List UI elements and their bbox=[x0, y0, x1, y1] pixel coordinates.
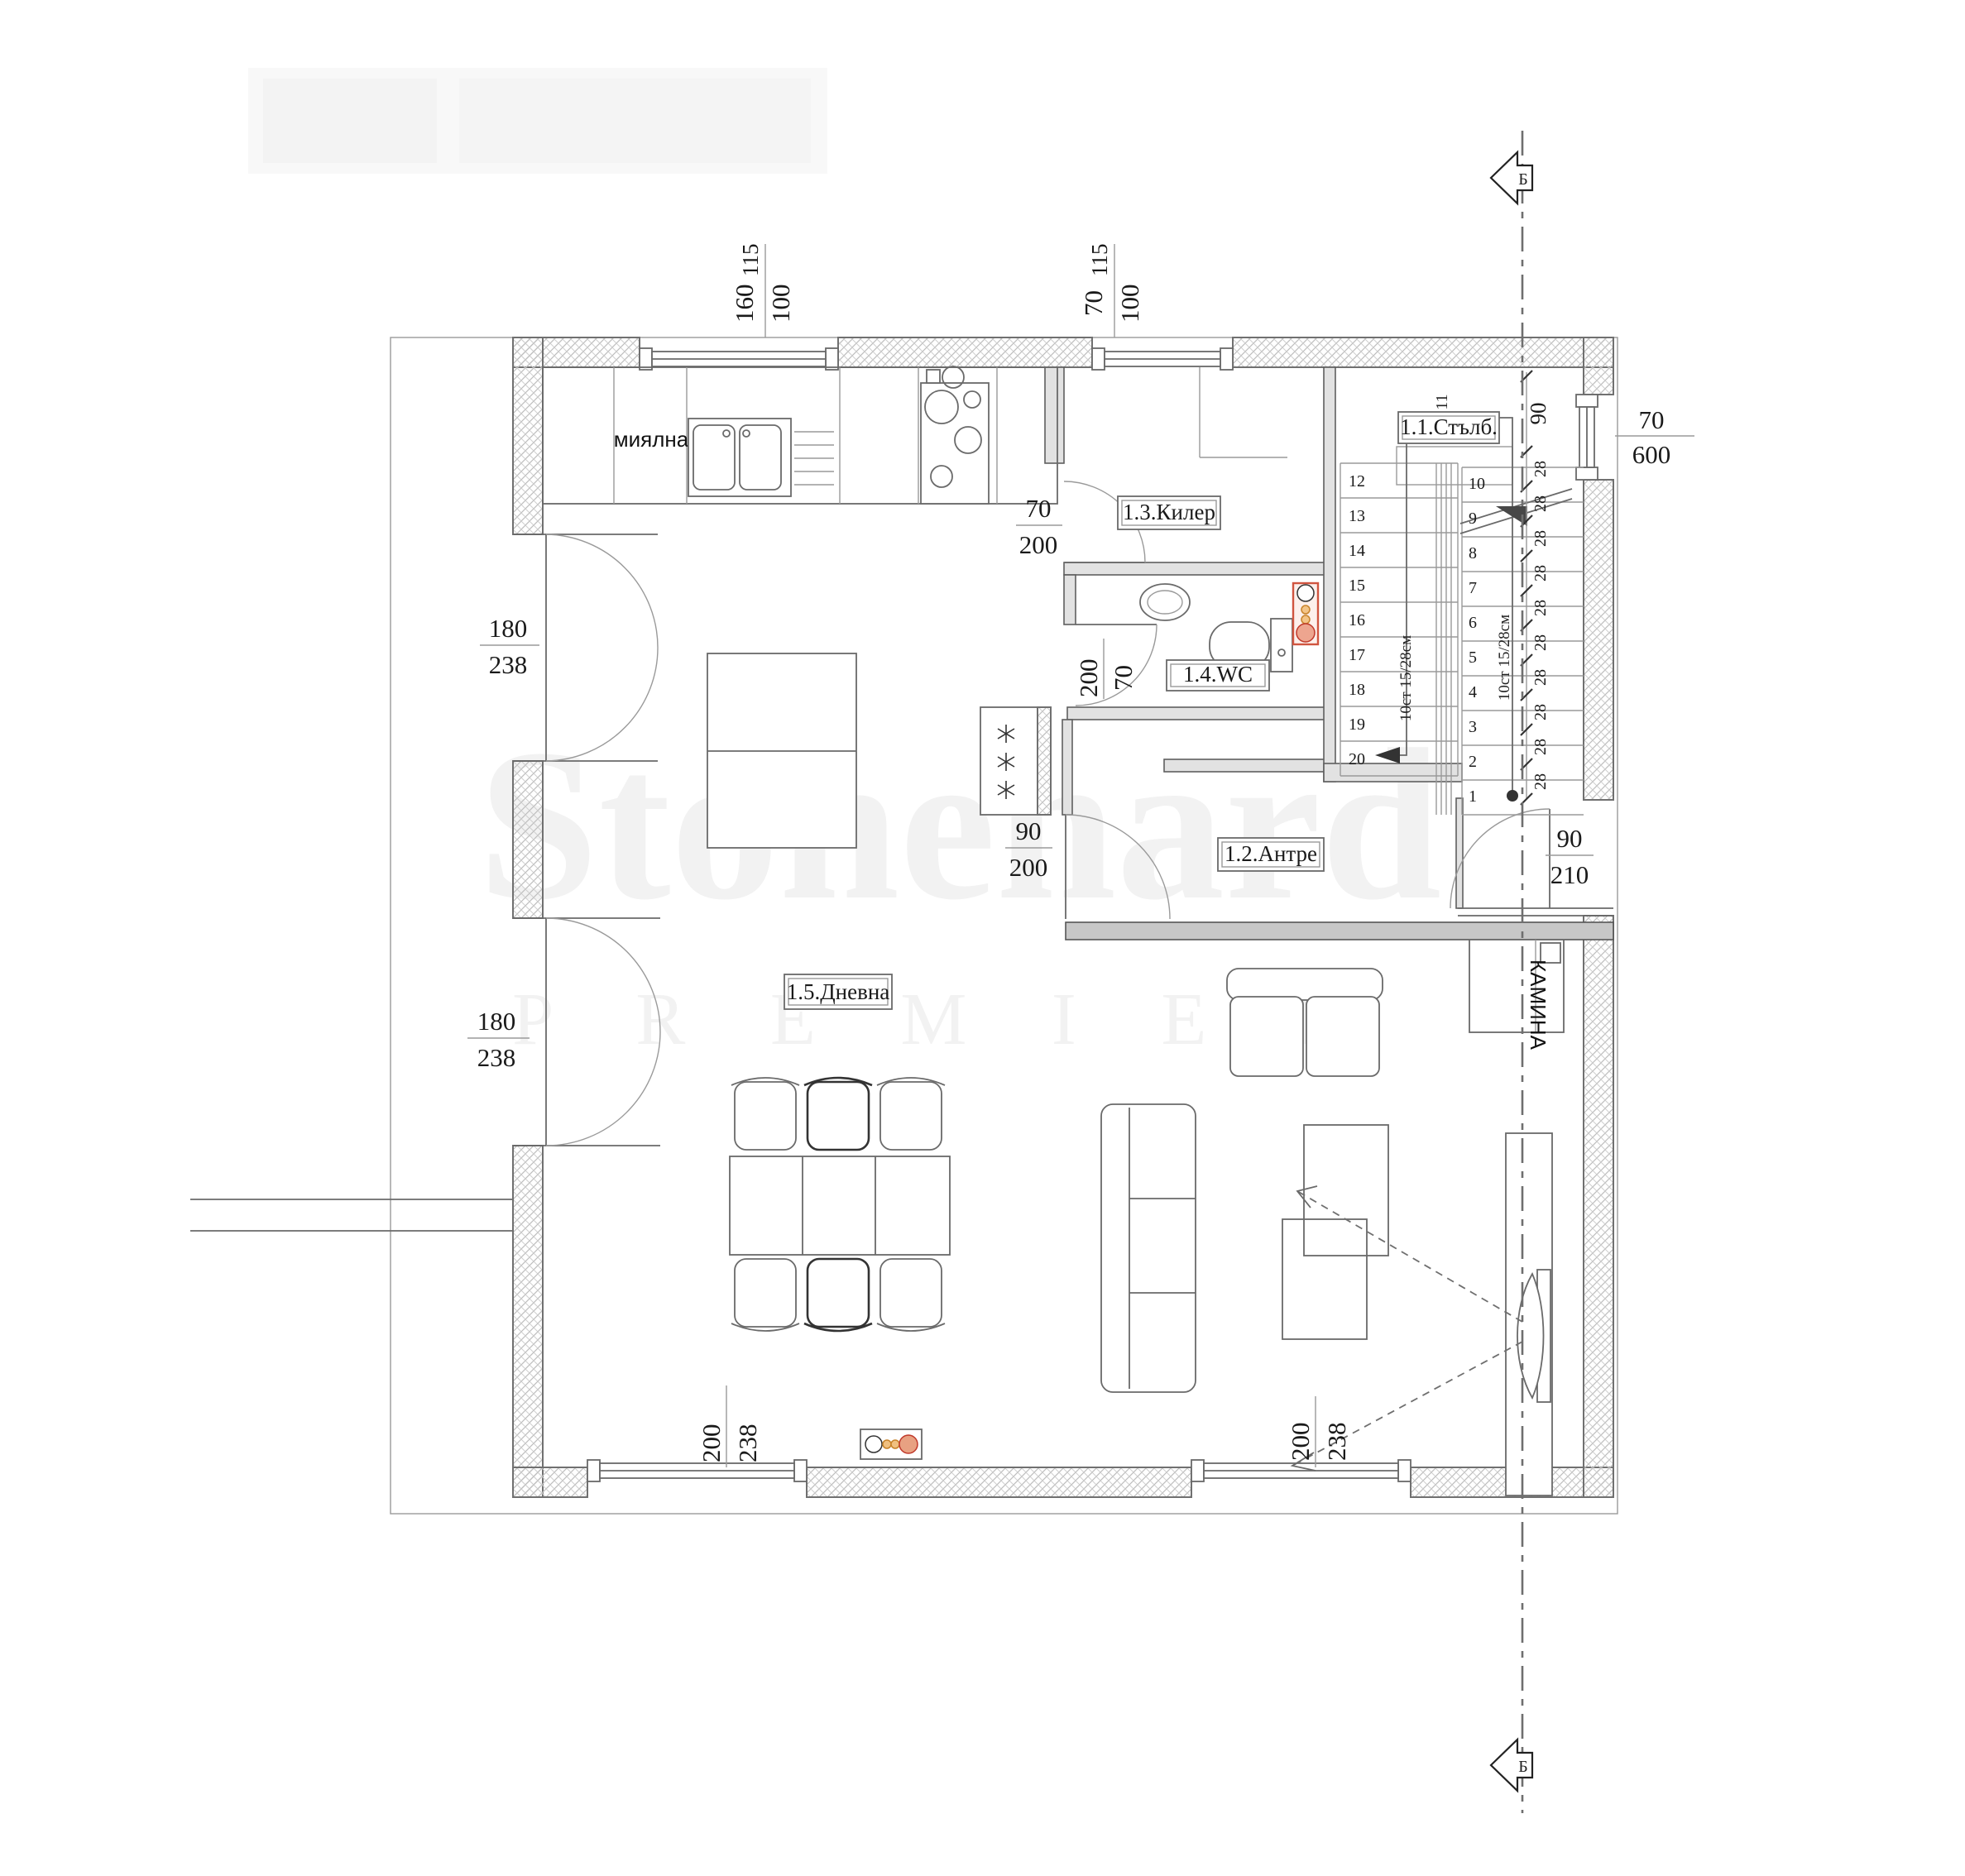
svg-text:10: 10 bbox=[1469, 475, 1485, 493]
room-label-wc: 1.4.WC bbox=[1167, 660, 1269, 691]
svg-text:18: 18 bbox=[1349, 681, 1365, 699]
watermark-logo-block-right bbox=[459, 79, 811, 163]
svg-text:5: 5 bbox=[1469, 648, 1477, 667]
room-label-living: 1.5.Дневна bbox=[784, 974, 892, 1009]
fireplace: КАМИНА bbox=[1469, 940, 1564, 1050]
wall-top-3 bbox=[1233, 337, 1613, 367]
tread-dims: 28 28 28 28 28 28 28 28 28 28 bbox=[1531, 461, 1550, 790]
svg-text:14: 14 bbox=[1349, 542, 1365, 560]
entrance-door bbox=[1450, 809, 1550, 908]
dim-wc-door: 200 70 bbox=[1074, 639, 1138, 699]
svg-text:90: 90 bbox=[1557, 824, 1583, 853]
closet-shelves bbox=[1200, 367, 1287, 457]
svg-text:28: 28 bbox=[1531, 530, 1550, 547]
floor-convector bbox=[860, 1429, 922, 1459]
dining-chairs-top bbox=[731, 1078, 945, 1150]
watermark-logo-block-left bbox=[263, 79, 437, 163]
section-label-bottom: Б bbox=[1518, 1758, 1527, 1776]
sofa bbox=[1101, 1104, 1196, 1392]
svg-text:28: 28 bbox=[1531, 739, 1550, 755]
dining-chairs-bottom bbox=[731, 1259, 945, 1331]
svg-text:6: 6 bbox=[1469, 614, 1477, 632]
stair-dimension-chain: 90 28 28 28 28 28 28 28 28 28 28 bbox=[1521, 371, 1550, 805]
dim-window-bottom-left: 200 238 bbox=[697, 1385, 762, 1467]
svg-text:90: 90 bbox=[1016, 816, 1042, 845]
svg-text:20: 20 bbox=[1349, 750, 1365, 768]
svg-text:16: 16 bbox=[1349, 611, 1365, 629]
wall-right-3 bbox=[1584, 916, 1613, 1497]
dining-set bbox=[730, 1078, 950, 1331]
svg-text:7: 7 bbox=[1469, 579, 1477, 597]
partition-wc-south bbox=[1067, 707, 1329, 720]
svg-text:1.2.Антре: 1.2.Антре bbox=[1225, 841, 1317, 866]
svg-text:238: 238 bbox=[733, 1424, 762, 1463]
stair-step-numbers-right: 109 87 65 43 21 bbox=[1469, 475, 1485, 806]
window-top-right bbox=[1092, 348, 1233, 370]
kitchen-sink bbox=[688, 419, 834, 496]
svg-text:600: 600 bbox=[1632, 440, 1671, 469]
svg-text:13: 13 bbox=[1349, 507, 1365, 525]
svg-text:28: 28 bbox=[1531, 495, 1550, 512]
svg-text:19: 19 bbox=[1349, 715, 1365, 734]
svg-text:70: 70 bbox=[1026, 494, 1052, 523]
flight-note-left: 10ст 15/28см bbox=[1397, 635, 1415, 721]
svg-text:9: 9 bbox=[1469, 510, 1477, 528]
svg-text:115: 115 bbox=[1087, 244, 1112, 277]
svg-text:1.1.Стълб.: 1.1.Стълб. bbox=[1400, 414, 1498, 439]
svg-text:28: 28 bbox=[1531, 565, 1550, 581]
svg-text:200: 200 bbox=[1074, 659, 1103, 698]
svg-text:4: 4 bbox=[1469, 683, 1477, 701]
heater-unit bbox=[980, 707, 1051, 815]
svg-text:8: 8 bbox=[1469, 544, 1477, 562]
wall-bottom-1 bbox=[513, 1467, 587, 1497]
room-label-hall: 1.2.Антре bbox=[1218, 838, 1324, 871]
svg-text:12: 12 bbox=[1349, 472, 1365, 491]
svg-text:70: 70 bbox=[1109, 665, 1138, 691]
sink-area-label: миялна bbox=[614, 427, 689, 452]
floor-plan-page: Stonehard P R E M I E R bbox=[0, 0, 1965, 1876]
coffee-table-2 bbox=[1282, 1219, 1367, 1339]
dim-window-stair: 70 600 bbox=[1615, 405, 1694, 469]
svg-text:1.3.Килер: 1.3.Килер bbox=[1123, 500, 1215, 524]
flight-note-right: 10ст 15/28см bbox=[1496, 615, 1513, 701]
wall-left-2 bbox=[513, 761, 543, 918]
partition-kitchen-closet bbox=[1045, 367, 1064, 463]
cooktop bbox=[921, 366, 989, 504]
tv-sight-line-1 bbox=[1297, 1191, 1522, 1322]
wall-left-1 bbox=[513, 337, 543, 534]
wall-bottom-2 bbox=[807, 1467, 1191, 1497]
svg-text:1: 1 bbox=[1469, 787, 1477, 806]
svg-text:1.5.Дневна: 1.5.Дневна bbox=[787, 979, 890, 1004]
wall-top-2 bbox=[838, 337, 1092, 367]
svg-text:115: 115 bbox=[738, 244, 763, 277]
section-marker-bottom: Б bbox=[1491, 1740, 1532, 1791]
room-label-closet: 1.3.Килер bbox=[1118, 496, 1220, 529]
stair-step-numbers-left: 1213 1415 1617 1819 20 bbox=[1349, 472, 1365, 768]
partition-niche bbox=[1164, 759, 1330, 772]
svg-text:28: 28 bbox=[1531, 704, 1550, 720]
svg-text:28: 28 bbox=[1531, 600, 1550, 616]
svg-text:100: 100 bbox=[766, 285, 795, 323]
wall-right-1 bbox=[1584, 337, 1613, 395]
svg-text:210: 210 bbox=[1550, 860, 1589, 889]
kitchen-island bbox=[707, 653, 856, 848]
stair-well-opening bbox=[1397, 447, 1512, 485]
section-marker-top: Б bbox=[1491, 152, 1532, 203]
dim-entrance-door: 90 210 bbox=[1546, 824, 1594, 889]
svg-text:238: 238 bbox=[477, 1043, 516, 1072]
coffee-table-1 bbox=[1304, 1125, 1388, 1256]
window-bottom-right bbox=[1191, 1460, 1411, 1481]
wall-right-2 bbox=[1584, 480, 1613, 800]
svg-text:3: 3 bbox=[1469, 718, 1477, 736]
svg-text:28: 28 bbox=[1531, 669, 1550, 686]
floor-plan-drawing: Stonehard P R E M I E R bbox=[0, 0, 1965, 1876]
dim-window-top-right: 115 70 100 bbox=[1079, 244, 1144, 338]
svg-text:2: 2 bbox=[1469, 753, 1477, 771]
section-label-top: Б bbox=[1518, 170, 1527, 189]
svg-text:28: 28 bbox=[1531, 773, 1550, 790]
partition-stair-west bbox=[1324, 367, 1335, 782]
svg-text:200: 200 bbox=[697, 1424, 726, 1463]
dim-window-bottom-right: 200 238 bbox=[1286, 1396, 1351, 1467]
stair-landing-number: 11 bbox=[1433, 394, 1451, 409]
svg-text:17: 17 bbox=[1349, 646, 1365, 664]
dim-window-top-left: 115 160 100 bbox=[730, 244, 795, 338]
svg-text:200: 200 bbox=[1019, 530, 1058, 559]
dim-terrace-door-upper: 180 238 bbox=[480, 614, 539, 679]
svg-text:180: 180 bbox=[489, 614, 528, 643]
svg-text:70: 70 bbox=[1079, 290, 1108, 316]
wall-left-3 bbox=[513, 1146, 543, 1497]
wc-radiator bbox=[1293, 583, 1318, 644]
svg-text:160: 160 bbox=[730, 285, 759, 323]
stair-break-line bbox=[1460, 489, 1572, 534]
partition-wc-west bbox=[1064, 575, 1076, 625]
dining-table bbox=[730, 1156, 950, 1255]
svg-text:70: 70 bbox=[1639, 405, 1665, 434]
partition-hall-living bbox=[1066, 922, 1613, 940]
svg-text:100: 100 bbox=[1115, 285, 1144, 323]
svg-text:200: 200 bbox=[1009, 853, 1048, 882]
svg-text:15: 15 bbox=[1349, 577, 1365, 595]
watermark-brand-text: Stonehard bbox=[478, 705, 1442, 945]
pot-handle bbox=[927, 370, 940, 383]
fireplace-label: КАМИНА bbox=[1526, 960, 1550, 1050]
svg-text:28: 28 bbox=[1531, 461, 1550, 477]
svg-text:180: 180 bbox=[477, 1007, 516, 1036]
room-label-stairs: 1.1.Стълб. bbox=[1398, 412, 1499, 443]
svg-text:28: 28 bbox=[1531, 634, 1550, 651]
partition-hall-door-stub bbox=[1062, 720, 1072, 815]
stair-width-dim: 90 bbox=[1526, 403, 1550, 425]
partition-closet-wc bbox=[1064, 562, 1329, 575]
svg-text:238: 238 bbox=[489, 650, 528, 679]
wc-fixtures bbox=[1140, 583, 1318, 672]
svg-text:238: 238 bbox=[1322, 1423, 1351, 1462]
svg-text:200: 200 bbox=[1286, 1423, 1315, 1462]
svg-text:1.4.WC: 1.4.WC bbox=[1183, 662, 1253, 687]
